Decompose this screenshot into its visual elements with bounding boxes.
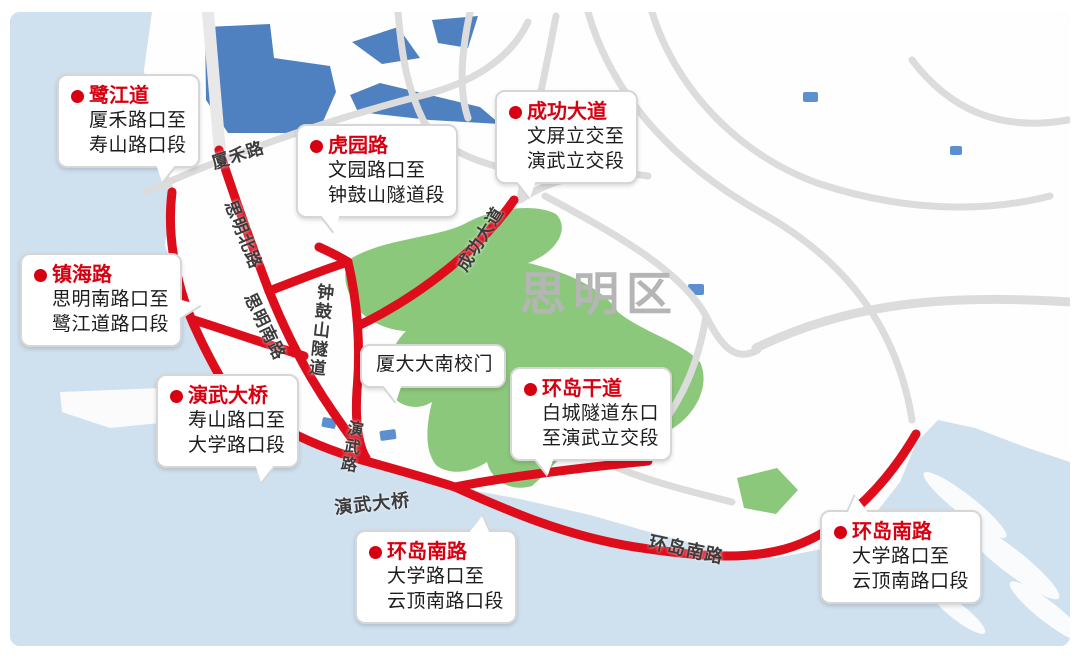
callout-huandao-nanlu-right: 环岛南路 大学路口至云顶南路口段 [820, 510, 982, 604]
callout-lujiangdao: 鹭江道 厦禾路口至寿山路口段 [57, 74, 200, 168]
callout-section-text: 白城隧道东口 [524, 402, 659, 427]
callout-road-name: 环岛南路 [387, 539, 467, 565]
callout-section-text: 大学路口段 [170, 434, 286, 459]
callout-title: 镇海路 [34, 262, 169, 288]
callout-section-text: 厦禾路口至 [71, 109, 187, 134]
callout-road-name: 环岛南路 [852, 519, 932, 545]
callout-road-name: 环岛干道 [542, 376, 622, 402]
callout-road-name: 鹭江道 [89, 83, 149, 109]
callout-pointer-icon [382, 384, 402, 402]
callout-title: 虎园路 [310, 133, 445, 159]
red-dot-icon [524, 383, 537, 396]
callout-pointer-icon [468, 516, 490, 534]
callout-pointer-icon [178, 299, 200, 319]
red-dot-icon [369, 546, 382, 559]
callout-section-text: 钟鼓山隧道段 [310, 184, 445, 209]
callout-title: 演武大桥 [170, 383, 286, 409]
callout-section-text: 文屏立交至 [509, 125, 625, 150]
callout-section-text: 鹭江道路口段 [34, 313, 169, 338]
callout-pointer-icon [516, 180, 536, 198]
callout-pointer-icon [156, 164, 176, 182]
callout-pointer-icon [847, 496, 869, 514]
callout-section-text: 演武立交段 [509, 150, 625, 175]
callout-title: 环岛南路 [834, 519, 969, 545]
callout-pointer-icon [534, 457, 554, 475]
callout-huandao-gandao: 环岛干道 白城隧道东口至演武立交段 [510, 367, 672, 461]
screenshot-frame: 思明区 厦禾路思明北路鹭江道思明南路钟鼓山隧道成功大道演武路演武大桥环岛南路 鹭… [0, 0, 1080, 661]
callout-title: 鹭江道 [71, 83, 187, 109]
callout-zhenhailu: 镇海路 思明南路口至鹭江道路口段 [20, 253, 182, 347]
callout-huyuanlu: 虎园路 文园路口至钟鼓山隧道段 [296, 124, 458, 218]
callout-section-text: 思明南路口至 [34, 288, 169, 313]
callout-section-text: 云顶南路口段 [834, 570, 969, 595]
red-dot-icon [34, 269, 47, 282]
callout-section-text: 厦大大南校门 [374, 353, 493, 378]
callout-xiada-gate: 厦大大南校门 [360, 344, 506, 388]
callout-road-name: 虎园路 [328, 133, 388, 159]
callout-section-text: 大学路口至 [369, 565, 504, 590]
red-dot-icon [509, 106, 522, 119]
callout-huandao-nanlu-mid: 环岛南路 大学路口至云顶南路口段 [355, 530, 517, 624]
callout-section-text: 寿山路口至 [170, 409, 286, 434]
callout-section-text: 至演武立交段 [524, 427, 659, 452]
red-dot-icon [170, 390, 183, 403]
callout-section-text: 云顶南路口段 [369, 590, 504, 615]
red-dot-icon [71, 90, 84, 103]
callout-title: 环岛干道 [524, 376, 659, 402]
callout-chenggongdadao: 成功大道 文屏立交至演武立交段 [495, 90, 638, 184]
callout-section-text: 大学路口至 [834, 545, 969, 570]
traffic-map: 思明区 厦禾路思明北路鹭江道思明南路钟鼓山隧道成功大道演武路演武大桥环岛南路 鹭… [10, 12, 1070, 646]
callout-title: 成功大道 [509, 99, 625, 125]
district-label: 思明区 [520, 258, 679, 324]
callout-title: 环岛南路 [369, 539, 504, 565]
callout-road-name: 镇海路 [52, 262, 112, 288]
callout-pointer-icon [255, 464, 275, 482]
callout-section-text: 文园路口至 [310, 159, 445, 184]
callout-section-text: 寿山路口段 [71, 134, 187, 159]
callout-yanwudaqiao: 演武大桥 寿山路口至大学路口段 [156, 374, 299, 468]
callout-pointer-icon [320, 214, 340, 232]
red-dot-icon [834, 526, 847, 539]
red-dot-icon [310, 140, 323, 153]
callout-road-name: 成功大道 [527, 99, 607, 125]
callout-road-name: 演武大桥 [188, 383, 268, 409]
